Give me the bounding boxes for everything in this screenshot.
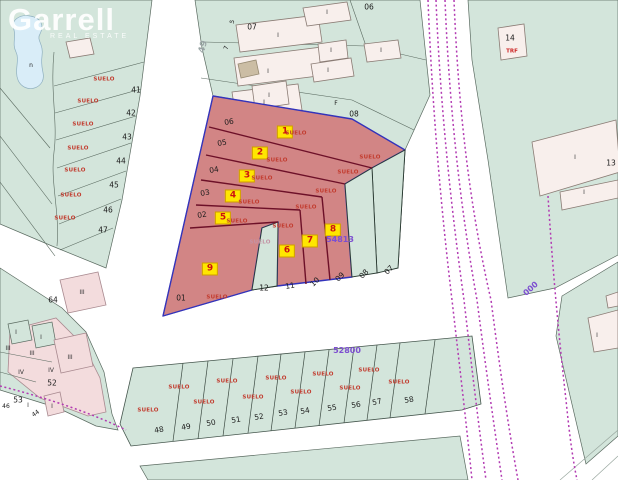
parcel-number: 46 (103, 206, 113, 214)
suelo-label: SUELO (285, 131, 306, 137)
building-floors-label: I (380, 48, 382, 54)
parcel-number: 51 (231, 415, 242, 424)
agency-logo: Garrell REAL ESTATE (8, 2, 129, 40)
building-floors-label: III (5, 346, 10, 352)
parcel-number: 43 (122, 133, 132, 141)
parcel-number: 5 (230, 19, 237, 24)
map-labels: 123456789SUELOSUELOSUELOSUELOSUELOSUELOS… (0, 0, 618, 480)
parcel-number: 53 (13, 396, 23, 404)
parcel-number: 14 (505, 34, 515, 42)
parcel-number: 10 (309, 276, 321, 288)
suelo-label: SUELO (388, 380, 409, 386)
plot-marker-7[interactable]: 7 (302, 235, 318, 248)
building-floors-label: I (583, 190, 585, 196)
parcel-number: n (29, 63, 33, 69)
parcel-number: 55 (327, 403, 338, 412)
parcel-number: 01 (176, 294, 186, 302)
building-floors-label: I (574, 155, 576, 161)
parcel-number: 07 (247, 23, 257, 31)
transformer-label: TRF (506, 49, 518, 55)
building-floors-label: III (79, 290, 84, 296)
suelo-label: SUELO (265, 376, 286, 382)
suelo-label: SUELO (251, 176, 272, 182)
parcel-number: 49 (181, 422, 192, 431)
building-floors-label: IV (18, 370, 24, 376)
parcel-number: 52 (47, 379, 57, 387)
building-floors-label: I (596, 333, 598, 339)
suelo-label: SUELO (226, 219, 247, 225)
parcel-number: 09 (334, 271, 346, 283)
parcel-number: 05 (217, 138, 228, 147)
building-floors-label: I (27, 403, 29, 409)
parcel-number: 64 (48, 296, 58, 304)
parcel-number: F (334, 101, 337, 107)
building-floors-label: III (29, 351, 34, 357)
suelo-label: SUELO (93, 77, 114, 83)
plot-marker-6[interactable]: 6 (279, 245, 295, 258)
suelo-label: SUELO (54, 216, 75, 222)
suelo-label: SUELO (266, 158, 287, 164)
parcel-number: 11 (285, 281, 296, 290)
building-floors-label: III (67, 355, 72, 361)
parcel-number: 50 (206, 418, 217, 427)
parcel-number: 13 (606, 159, 616, 167)
suelo-label: SUELO (137, 408, 158, 414)
parcel-number: 58 (404, 395, 415, 404)
suelo-label: SUELO (168, 385, 189, 391)
cadastral-map: 123456789SUELOSUELOSUELOSUELOSUELOSUELOS… (0, 0, 618, 480)
parcel-number: 54 (300, 406, 311, 415)
building-floors-label: I (15, 330, 17, 336)
suelo-label: SUELO (358, 368, 379, 374)
suelo-label: SUELO (359, 155, 380, 161)
suelo-label: SUELO (64, 168, 85, 174)
suelo-label: SUELO (77, 99, 98, 105)
parcel-number: 12 (259, 284, 269, 292)
suelo-label: SUELO (242, 395, 263, 401)
parcel-number: 44 (116, 157, 126, 165)
building-floors-label: I (277, 33, 279, 39)
suelo-label: SUELO (337, 170, 358, 176)
plot-marker-9[interactable]: 9 (202, 263, 218, 276)
parcel-number: 42 (126, 109, 136, 117)
building-floors-label: I (267, 69, 269, 75)
suelo-label: SUELO (67, 146, 88, 152)
parcel-number: 57 (372, 397, 383, 406)
parcel-number: 02 (197, 210, 208, 219)
suelo-label: SUELO (339, 386, 360, 392)
building-floors-label: I (327, 68, 329, 74)
parcel-number: 07 (383, 264, 395, 276)
suelo-label: SUELO (238, 200, 259, 206)
parcel-number: 06 (224, 117, 235, 126)
street-number: 49 (198, 40, 210, 54)
parcel-number: 03 (200, 188, 211, 197)
building-floors-label: IV (48, 368, 54, 374)
building-floors-label: I (51, 404, 53, 410)
building-floors-label: I (268, 93, 270, 99)
building-floors-label: I (326, 10, 328, 16)
suelo-label: SUELO (206, 295, 227, 301)
suelo-label: SUELO (60, 193, 81, 199)
suelo-label: SUELO (72, 122, 93, 128)
parcel-number: 41 (131, 86, 141, 94)
cadastral-code: 52800 (333, 347, 361, 355)
parcel-number: 45 (109, 181, 119, 189)
parcel-number: 53 (278, 408, 289, 417)
cadastral-code: 000 (522, 280, 540, 297)
suelo-label: SUELO (249, 240, 270, 246)
parcel-number: 08 (349, 110, 359, 118)
building-floors-label: I (263, 100, 265, 106)
parcel-number: 08 (358, 268, 370, 280)
suelo-label: SUELO (216, 379, 237, 385)
suelo-label: SUELO (290, 390, 311, 396)
parcel-number: 44 (31, 409, 41, 418)
parcel-number: 56 (351, 400, 362, 409)
parcel-number: 52 (254, 412, 265, 421)
suelo-label: SUELO (315, 189, 336, 195)
parcel-number: 7 (224, 45, 231, 50)
parcel-number: 46 (2, 404, 10, 410)
suelo-label: SUELO (312, 372, 333, 378)
suelo-label: SUELO (272, 224, 293, 230)
suelo-label: SUELO (193, 400, 214, 406)
suelo-label: SUELO (295, 205, 316, 211)
building-floors-label: I (330, 48, 332, 54)
parcel-number: 47 (98, 226, 108, 234)
parcel-number: 48 (154, 425, 165, 434)
cadastral-code: 54813 (326, 236, 354, 244)
parcel-number: 06 (364, 3, 374, 11)
parcel-number: 04 (209, 165, 220, 174)
building-floors-label: I (40, 335, 42, 341)
